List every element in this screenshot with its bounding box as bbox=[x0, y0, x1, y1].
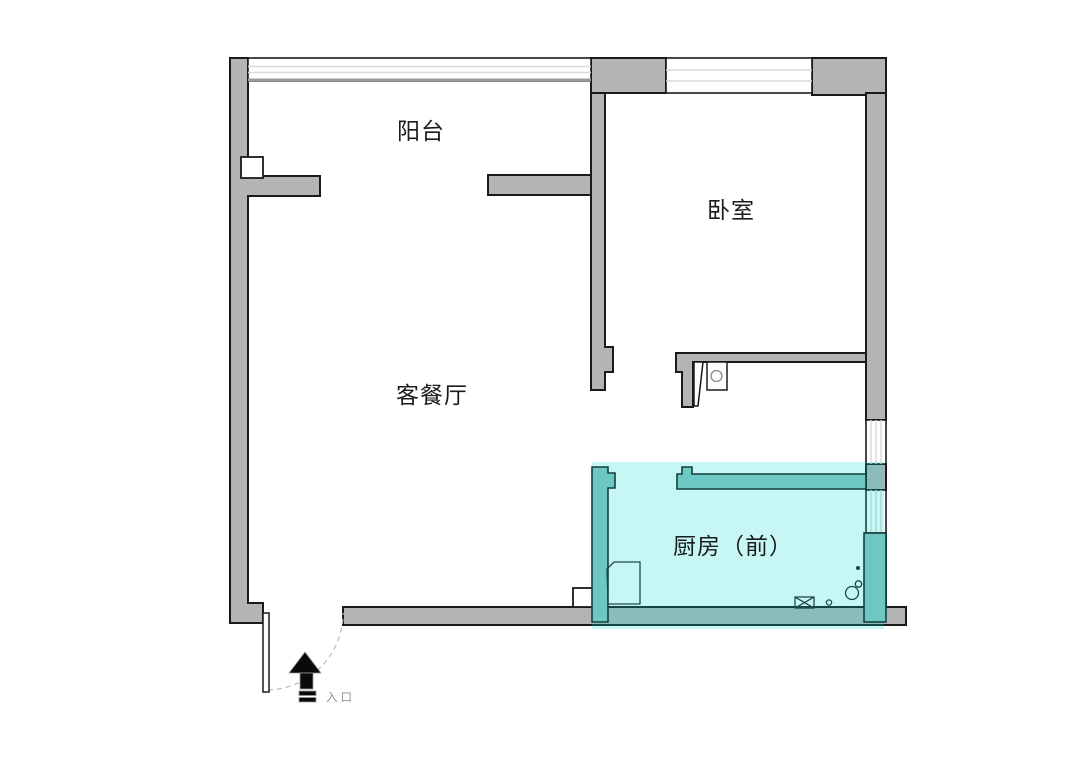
bedroom-window bbox=[666, 58, 812, 93]
pipe-dot-icon bbox=[857, 567, 860, 570]
balcony-window bbox=[248, 58, 591, 81]
floor-plan-canvas: 入口 阳台 卧室 客餐厅 厨房（前） bbox=[0, 0, 1079, 763]
kitchen-right-wall bbox=[864, 533, 886, 622]
balcony-divider-right bbox=[488, 175, 591, 195]
water-heater-box bbox=[707, 362, 727, 390]
left-exterior-wall bbox=[230, 58, 320, 623]
central-partition-wall bbox=[591, 93, 613, 390]
bedroom-bottom-wall bbox=[676, 353, 866, 407]
room-label-balcony: 阳台 bbox=[397, 118, 445, 144]
windows bbox=[248, 58, 886, 533]
top-right-wall-block bbox=[812, 58, 886, 95]
entrance-label: 入口 bbox=[326, 691, 355, 704]
room-label-kitchen-front: 厨房（前） bbox=[673, 533, 793, 559]
entrance-area: 入口 bbox=[263, 613, 355, 704]
entrance-threshold-bar-1 bbox=[299, 691, 316, 696]
top-center-wall-block bbox=[591, 58, 666, 93]
entrance-threshold-bar-2 bbox=[299, 698, 316, 703]
floor-plan-svg: 入口 阳台 卧室 客餐厅 厨房（前） bbox=[0, 0, 1079, 763]
balcony-column-box bbox=[241, 157, 263, 178]
room-label-bedroom: 卧室 bbox=[707, 197, 755, 223]
bathroom-doorway bbox=[694, 362, 727, 406]
room-label-living-dining: 客餐厅 bbox=[396, 382, 468, 408]
bathroom-door-leaf bbox=[694, 362, 703, 406]
entrance-arrow-head bbox=[289, 652, 321, 673]
right-exterior-wall-upper bbox=[866, 93, 886, 420]
entrance-arrow-icon bbox=[289, 652, 321, 702]
entrance-arrow-shaft bbox=[300, 673, 313, 689]
entry-door-leaf bbox=[263, 613, 269, 692]
